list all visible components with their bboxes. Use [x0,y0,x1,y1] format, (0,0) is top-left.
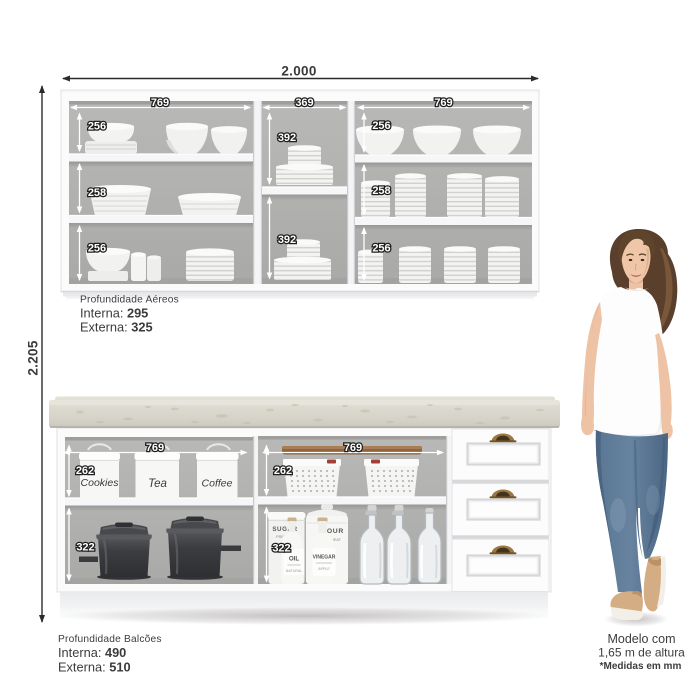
svg-text:769: 769 [146,442,164,454]
svg-text:769: 769 [151,97,169,109]
svg-text:262: 262 [76,465,94,477]
svg-text:VINEGAR: VINEGAR [313,555,336,561]
svg-text:Profundidade Aéreos: Profundidade Aéreos [80,295,179,306]
svg-text:256: 256 [372,243,390,255]
svg-text:OIL: OIL [289,556,300,563]
svg-text:769: 769 [344,442,362,454]
svg-text:APPLE: APPLE [318,567,330,571]
svg-text:1,65 m de altura: 1,65 m de altura [598,646,685,660]
svg-text:Interna: 295: Interna: 295 [80,306,148,321]
svg-text:Modelo com: Modelo com [607,632,675,646]
svg-text:258: 258 [88,187,106,199]
svg-text:Externa: 510: Externa: 510 [58,660,131,675]
svg-text:2.205: 2.205 [26,340,41,375]
svg-text:256: 256 [88,243,106,255]
svg-text:322: 322 [76,542,94,554]
svg-text:769: 769 [434,97,452,109]
svg-text:256: 256 [372,120,390,132]
svg-text:Profundidade Balcões: Profundidade Balcões [58,634,162,645]
svg-text:369: 369 [295,97,313,109]
svg-text:Cookies: Cookies [81,477,120,489]
svg-text:2.000: 2.000 [281,64,316,79]
svg-text:262: 262 [274,465,292,477]
svg-text:Interna: 490: Interna: 490 [58,645,126,660]
svg-text:*Medidas em mm: *Medidas em mm [600,661,682,672]
svg-text:Tea: Tea [148,478,167,490]
svg-text:NATURAL: NATURAL [286,569,303,573]
svg-text:322: 322 [272,543,290,555]
svg-text:Coffee: Coffee [202,478,233,490]
svg-text:256: 256 [88,121,106,133]
svg-text:392: 392 [278,132,296,144]
svg-text:258: 258 [372,185,390,197]
svg-text:Externa: 325: Externa: 325 [80,320,153,335]
svg-text:392: 392 [278,234,296,246]
